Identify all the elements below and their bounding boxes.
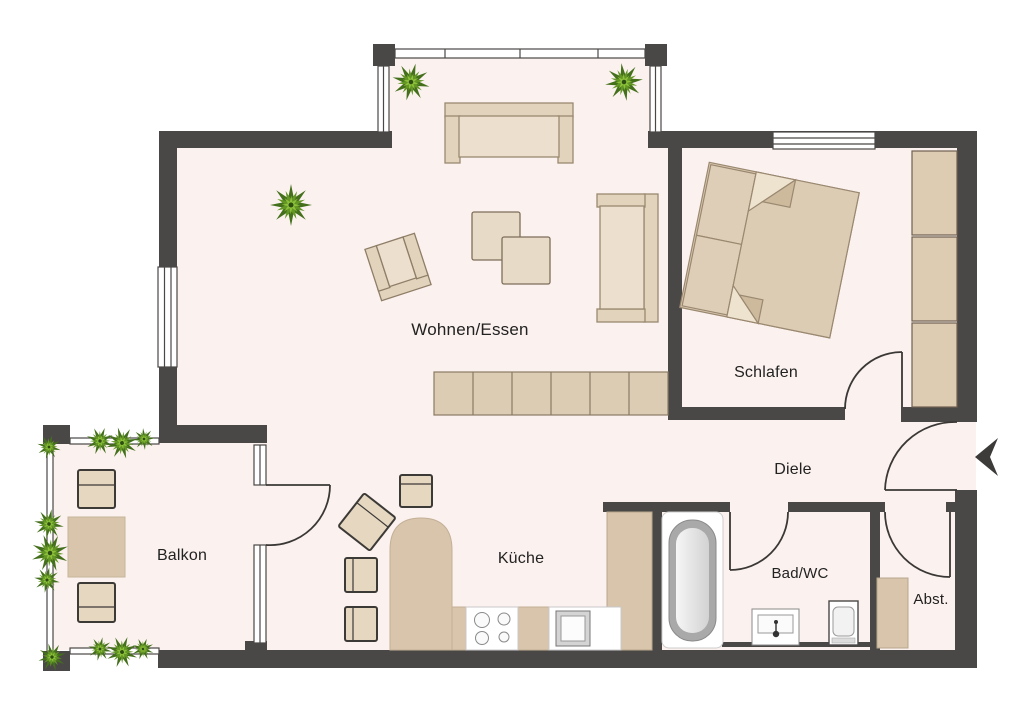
balcony-chair-top (78, 470, 115, 508)
balcony-post-top (43, 425, 70, 444)
wall-living-bedroom (668, 131, 682, 420)
wall-left-upper (159, 131, 177, 267)
wardrobe (912, 151, 957, 407)
stool-1 (400, 475, 432, 507)
entrance-threshold (956, 422, 976, 490)
wall-living-balcony (159, 425, 267, 443)
wall-right-upper (957, 131, 977, 422)
sideboard (434, 372, 668, 415)
bathroom-sink (752, 609, 799, 645)
room-label-balkon: Balkon (157, 547, 207, 564)
double-bed (680, 162, 859, 338)
plant-icon (270, 184, 312, 226)
wall-bedroom-hall-left (668, 407, 845, 420)
storage-cabinet (877, 578, 908, 648)
bay-post-left (373, 44, 395, 66)
toilet (829, 601, 858, 645)
bedroom-window (773, 132, 875, 149)
stool-4 (345, 607, 377, 641)
wall-bath-hall-right (788, 502, 885, 512)
room-label-diele: Diele (774, 461, 811, 478)
bathtub (662, 512, 723, 648)
kitchen-counter-arch (390, 518, 452, 650)
room-label-kueche: Küche (498, 550, 544, 567)
side-table-2 (502, 237, 550, 284)
wall-right-lower (955, 490, 977, 668)
stool-3 (345, 558, 377, 592)
stove (466, 607, 518, 650)
wall-bedroom-hall-right (901, 407, 957, 422)
floor-plan: Wohnen/Essen Schlafen Diele Balkon Küche… (0, 0, 1024, 724)
balcony-table (68, 517, 125, 577)
room-label-bad-wc: Bad/WC (771, 565, 828, 582)
room-label-wohnen-essen: Wohnen/Essen (411, 320, 528, 339)
living-room-window (158, 267, 177, 367)
bay-post-right (645, 44, 667, 66)
kitchen-sink (549, 607, 621, 650)
wall-kitchen-bath (652, 512, 662, 650)
sofa-top (445, 103, 573, 163)
entrance-arrow-icon (975, 438, 998, 476)
wall-bath-hall-left (603, 502, 730, 512)
room-label-schlafen: Schlafen (734, 364, 798, 381)
balcony-chair-bottom (78, 583, 115, 622)
wall-bottom (158, 650, 977, 668)
wall-top-left (159, 131, 392, 148)
floor-plan-canvas: Wohnen/Essen Schlafen Diele Balkon Küche… (0, 0, 1024, 724)
sofa-right (597, 194, 658, 322)
wall-storage-jamb (946, 502, 957, 512)
room-label-abstellraum: Abst. (913, 591, 948, 608)
